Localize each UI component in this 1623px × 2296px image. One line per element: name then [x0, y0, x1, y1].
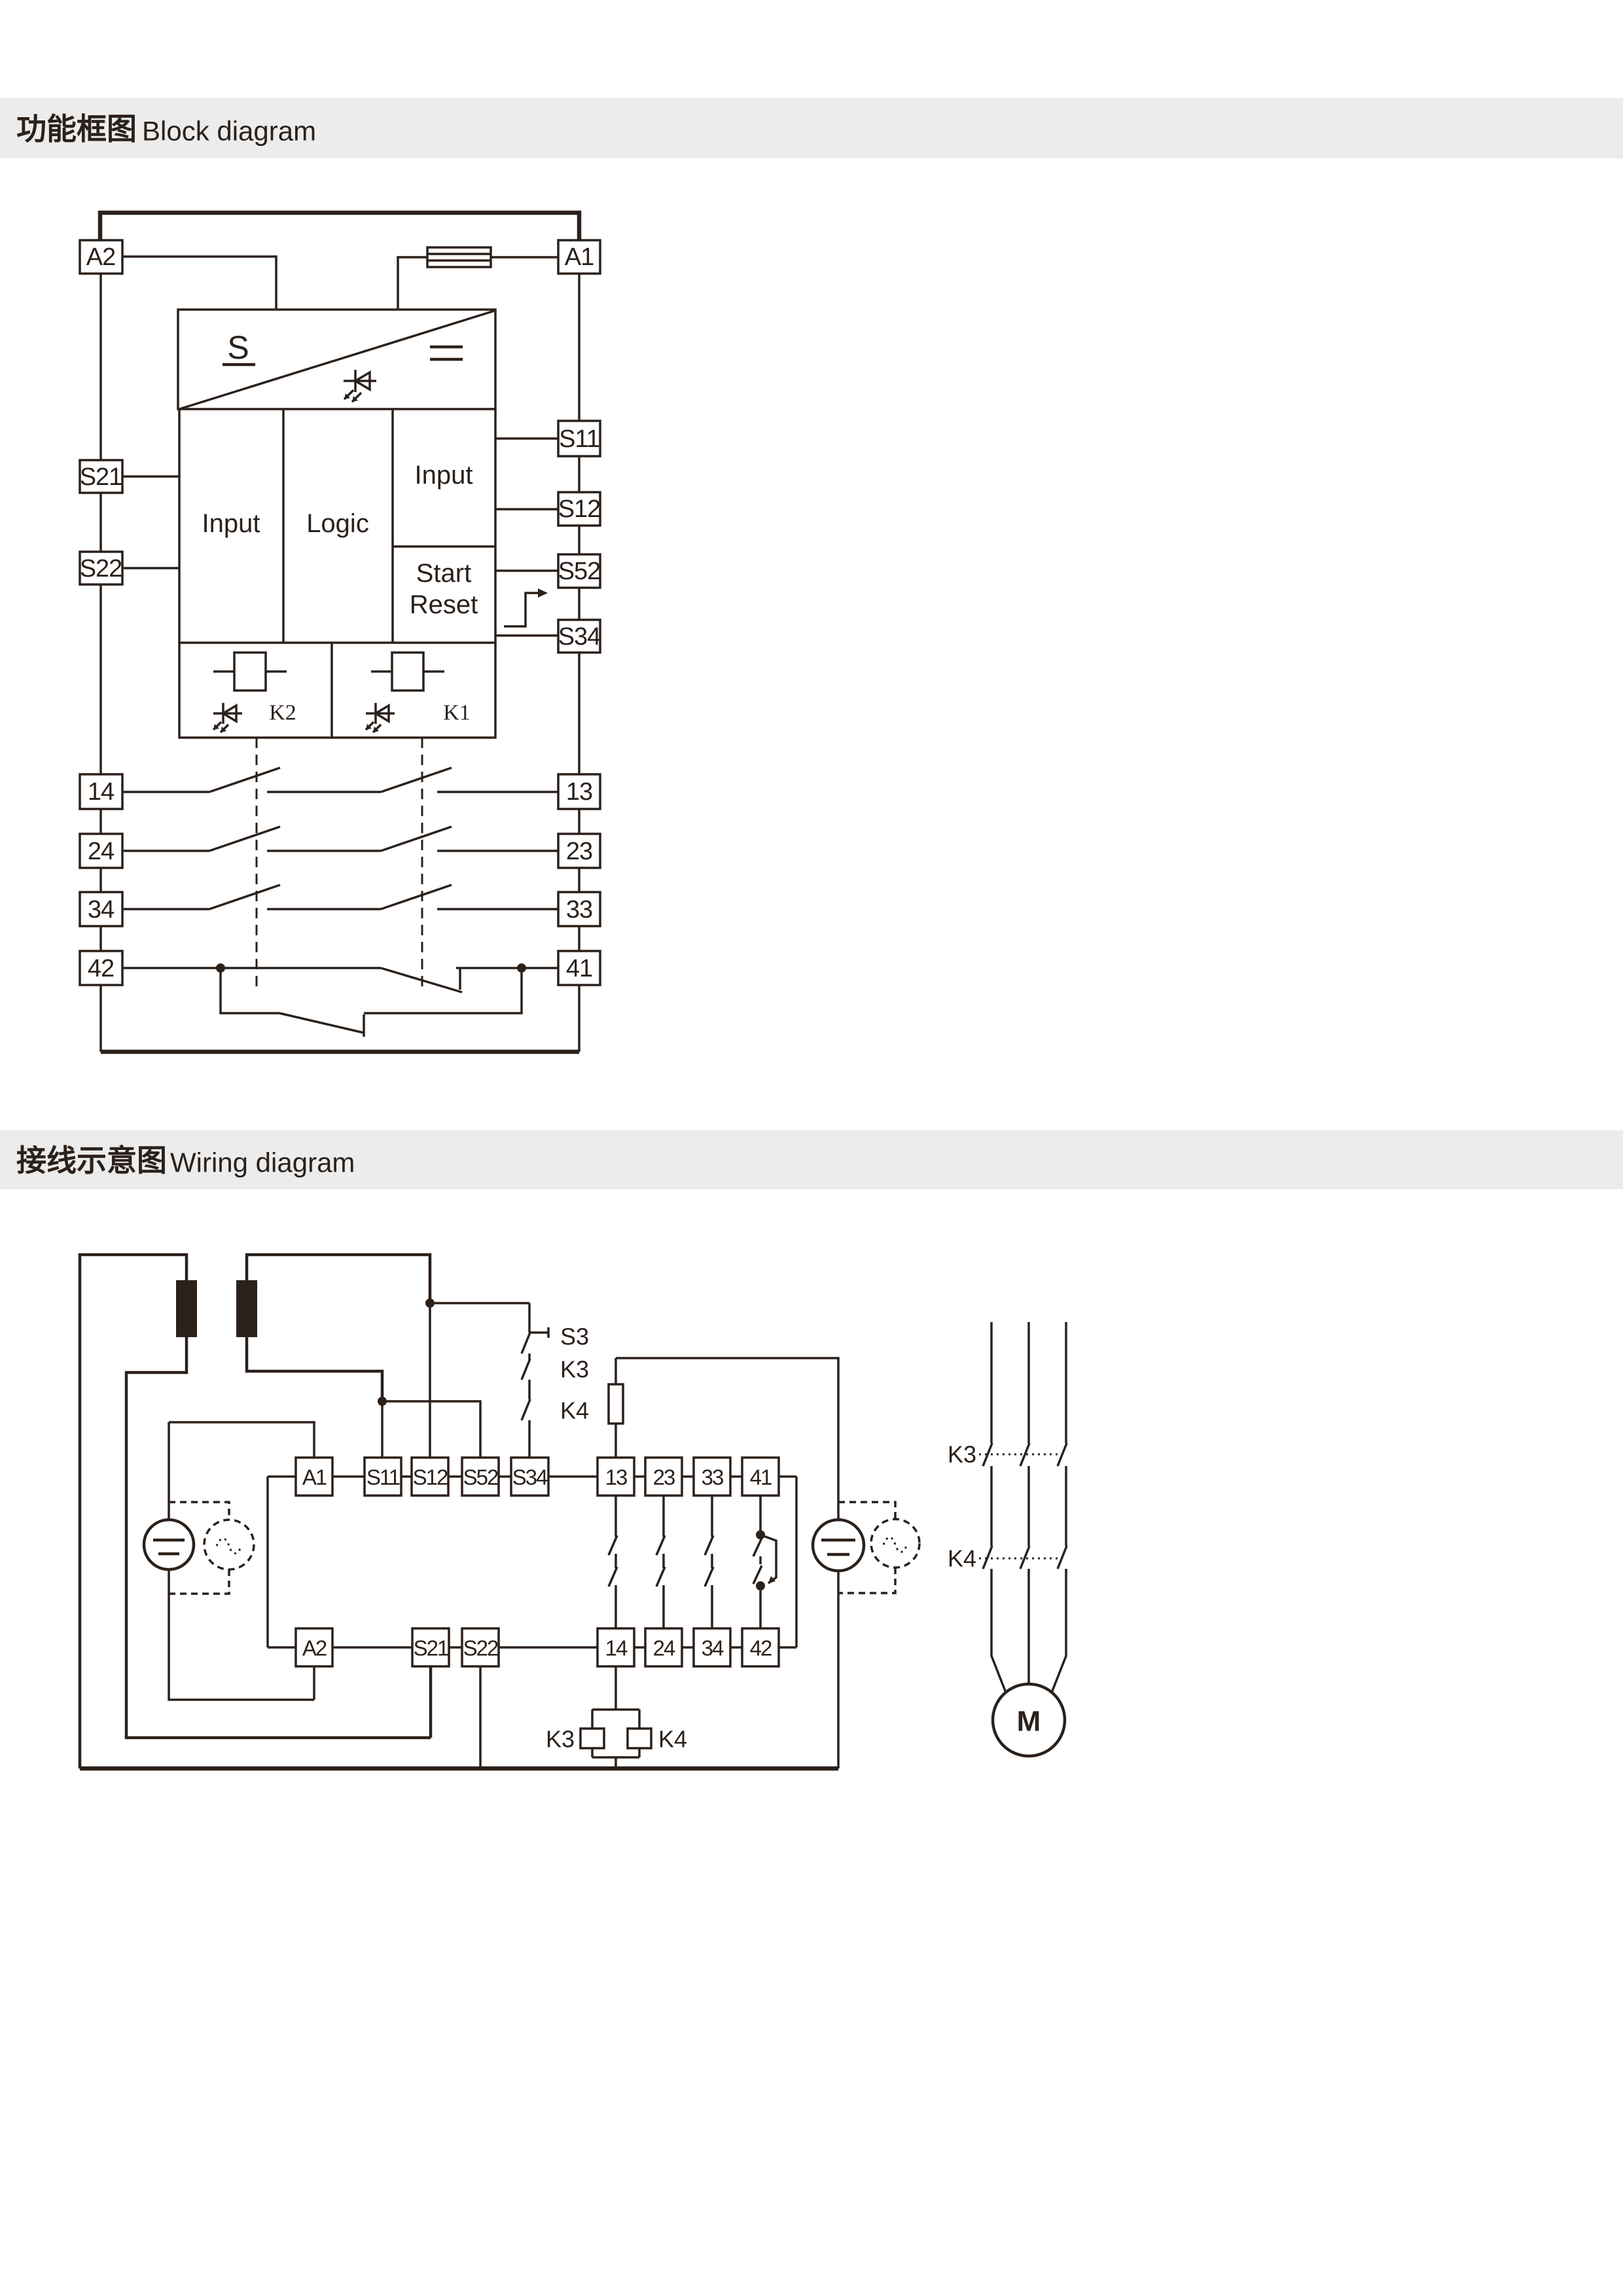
no-contact-rows: [122, 768, 558, 909]
chain-k4-label: K4: [560, 1397, 589, 1424]
terminal-s34: S34: [558, 623, 601, 651]
terminal-34: 34: [702, 1636, 724, 1660]
input-circuit-wires: [382, 1303, 529, 1458]
junction-dot: [425, 1299, 435, 1308]
relay-coil-icon: [213, 653, 287, 691]
relay-k1-label: K1: [443, 701, 471, 725]
header-wiring-diagram: 接线示意图 Wiring diagram: [0, 1130, 1623, 1189]
section-title-en: Block diagram: [142, 116, 316, 147]
terminal-s11: S11: [366, 1465, 400, 1490]
terminal-a2: A2: [86, 243, 115, 271]
terminal-s52: S52: [463, 1465, 498, 1490]
contactor-coils: K3 K4: [546, 1666, 687, 1768]
terminal-24: 24: [653, 1636, 675, 1660]
section-title-en: Wiring diagram: [170, 1147, 355, 1178]
block-diagram: S Input Logic Input Start Reset: [80, 213, 601, 1052]
dc-output-icon: [430, 347, 463, 359]
terminal-41: 41: [750, 1465, 772, 1490]
junction-dot: [378, 1397, 387, 1406]
terminal-33: 33: [566, 896, 592, 924]
header-block-diagram: 功能框图 Block diagram: [0, 98, 1623, 158]
terminal-a2: A2: [302, 1636, 327, 1660]
coil-k4-label: K4: [658, 1726, 687, 1753]
terminal-23: 23: [566, 838, 592, 865]
contactor-k3-label: K3: [948, 1441, 976, 1468]
nc-contact-row: [122, 963, 558, 1037]
terminal-23: 23: [653, 1465, 675, 1490]
top-frame-wire: [100, 213, 579, 240]
terminal-42: 42: [750, 1636, 772, 1660]
fuse-icon: [176, 1280, 197, 1337]
wiring-diagram: S3 K3 K4: [80, 1255, 1067, 1768]
stop-button-label: S3: [560, 1323, 589, 1350]
fuse-icon: [427, 247, 491, 267]
relay-coil-icon: [628, 1729, 651, 1748]
terminal-s12: S12: [558, 495, 601, 523]
terminal-a1: A1: [302, 1465, 327, 1490]
left-supply: [144, 1422, 314, 1700]
terminal-13: 13: [566, 778, 592, 806]
mains-loop-2: [247, 1255, 430, 1401]
terminal-s22: S22: [80, 555, 122, 583]
chain-k3-label: K3: [560, 1356, 589, 1383]
terminal-14: 14: [605, 1636, 628, 1660]
terminal-s21: S21: [80, 463, 122, 491]
relay-k2-label: K2: [269, 701, 296, 725]
edge-trigger-icon: [504, 588, 548, 626]
frame-side-wires: [101, 985, 579, 1052]
wiring-terminals-top: A1 S11 S12 S52 S34 13 23 33 41: [296, 1458, 779, 1496]
section-title-zh: 功能框图: [16, 111, 137, 147]
motor-icon: M: [993, 1684, 1065, 1756]
linkage-dashed-lines: [257, 738, 422, 987]
datasheet-page: 功能框图 Block diagram 接线示意图 Wiring diagram …: [0, 0, 1623, 2296]
terminal-s22: S22: [463, 1636, 498, 1660]
battery-icon: [813, 1520, 864, 1571]
terminal-chain-wires: [101, 274, 579, 951]
terminal-s11: S11: [559, 425, 599, 453]
fuse-icon: [609, 1384, 623, 1424]
contactor-k4-label: K4: [948, 1545, 976, 1572]
feedback-nc-contact: [753, 1496, 776, 1628]
input-right-label: Input: [415, 461, 473, 490]
output-no-contacts: [609, 1496, 713, 1628]
terminal-a1: A1: [565, 243, 594, 271]
ac-source-icon: [871, 1519, 919, 1568]
relay-coil-icon: [371, 653, 444, 691]
start-label: Start: [416, 559, 471, 588]
terminal-s52: S52: [558, 558, 601, 585]
fuse-icon: [236, 1280, 257, 1337]
led-icon: [344, 370, 376, 402]
led-icon: [213, 703, 242, 732]
alt-source-link: [169, 1502, 229, 1594]
terminal-34: 34: [88, 896, 115, 924]
motor-branch: K3 K4 M: [948, 1322, 1067, 1756]
terminal-s34: S34: [512, 1465, 548, 1490]
input-left-label: Input: [202, 509, 260, 538]
section-title-zh: 接线示意图: [16, 1143, 167, 1178]
right-supply: [813, 1502, 919, 1768]
led-icon: [366, 703, 395, 732]
terminal-41: 41: [566, 955, 592, 982]
alt-source-link: [838, 1502, 895, 1593]
start-chain: S3 K3 K4: [522, 1303, 589, 1458]
terminal-42: 42: [88, 955, 114, 982]
terminal-s21: S21: [414, 1636, 448, 1660]
ac-source-icon: [204, 1520, 254, 1570]
terminal-33: 33: [702, 1465, 723, 1490]
supply-symbol-label: S: [227, 329, 249, 366]
terminal-s12: S12: [413, 1465, 448, 1490]
diagram-canvas: 功能框图 Block diagram 接线示意图 Wiring diagram …: [0, 0, 1623, 2296]
battery-icon: [144, 1520, 194, 1570]
relay-coil-icon: [580, 1729, 604, 1748]
terminal-24: 24: [88, 838, 115, 865]
terminal-13: 13: [605, 1465, 627, 1490]
terminal-14: 14: [88, 778, 115, 806]
logic-label: Logic: [306, 509, 369, 538]
terminal-bus-wires: [268, 1477, 796, 1647]
coil-k3-label: K3: [546, 1726, 575, 1753]
supply-feed-wires: [122, 257, 558, 310]
motor-label: M: [1017, 1706, 1041, 1738]
reset-label: Reset: [410, 590, 478, 619]
